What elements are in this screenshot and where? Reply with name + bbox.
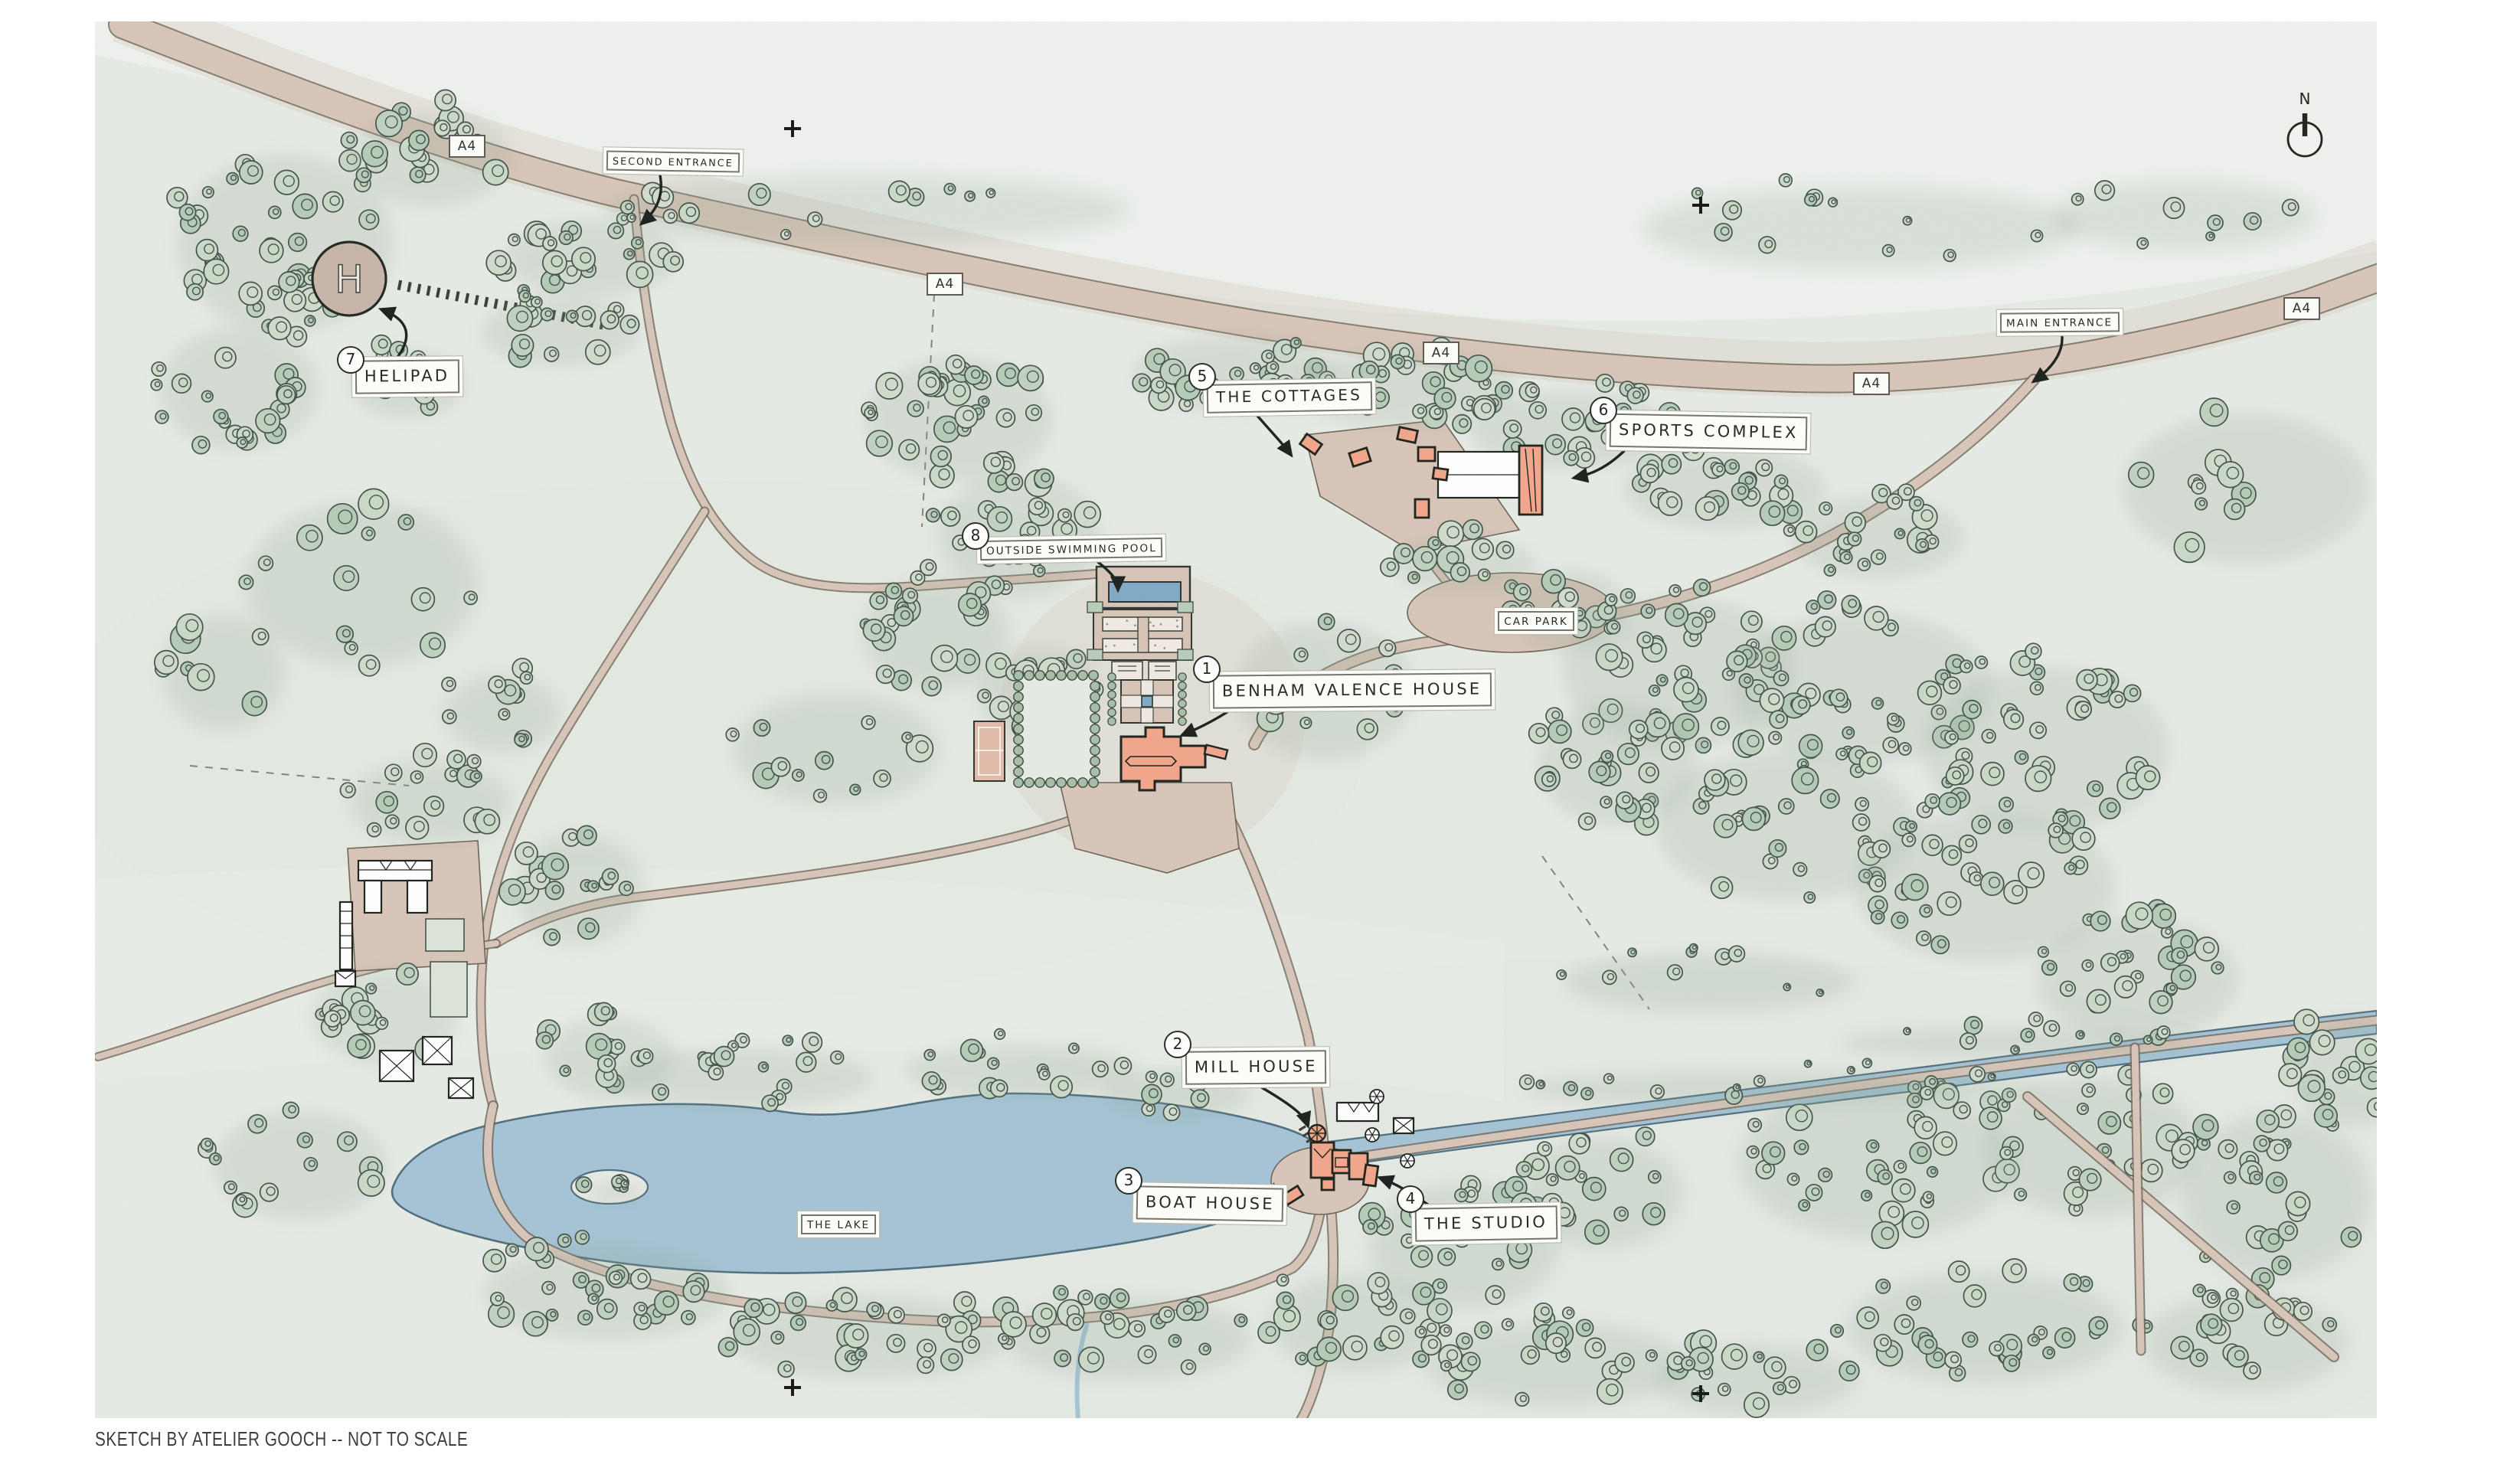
label-mill-house: MILL HOUSE [1185,1050,1327,1085]
attribution-text: SKETCH BY ATELIER GOOCH -- NOT TO SCALE [95,1427,468,1450]
marker-number-cottages: 5 [1188,363,1216,391]
road-badge-a4: A4 [2283,297,2320,320]
label-boat-house: BOAT HOUSE [1136,1185,1284,1221]
marker-number-mill: 2 [1164,1031,1191,1058]
label-main-entrance: MAIN ENTRANCE [2000,312,2119,332]
label-second-entrance: SECOND ENTRANCE [606,150,740,172]
road-badge-a4: A4 [449,135,485,158]
road-badge-a4: A4 [1853,372,1890,395]
label-the-studio: THE STUDIO [1415,1205,1557,1241]
label-sports-complex: SPORTS COMPLEX [1610,413,1808,451]
marker-number-sports: 6 [1590,397,1617,424]
label-outside-swimming-pool: OUTSIDE SWIMMING POOL [980,538,1163,561]
marker-number-pool: 8 [962,522,989,550]
label-car-park: CAR PARK [1498,611,1574,631]
sketch-map-page: H N [0,0,2507,1484]
label-the-lake: THE LAKE [801,1214,876,1234]
marker-number-boat: 3 [1115,1167,1142,1195]
marker-number-helipad: 7 [337,346,364,374]
marker-number-studio: 4 [1397,1185,1424,1213]
marker-number-house: 1 [1193,655,1221,683]
label-benham-valence-house: BENHAM VALENCE HOUSE [1213,672,1492,708]
map-canvas: H N [95,21,2377,1418]
road-badge-a4: A4 [927,273,963,296]
label-the-cottages: THE COTTAGES [1207,381,1372,413]
road-badge-a4: A4 [1423,342,1459,364]
label-helipad: HELIPAD [355,359,459,394]
